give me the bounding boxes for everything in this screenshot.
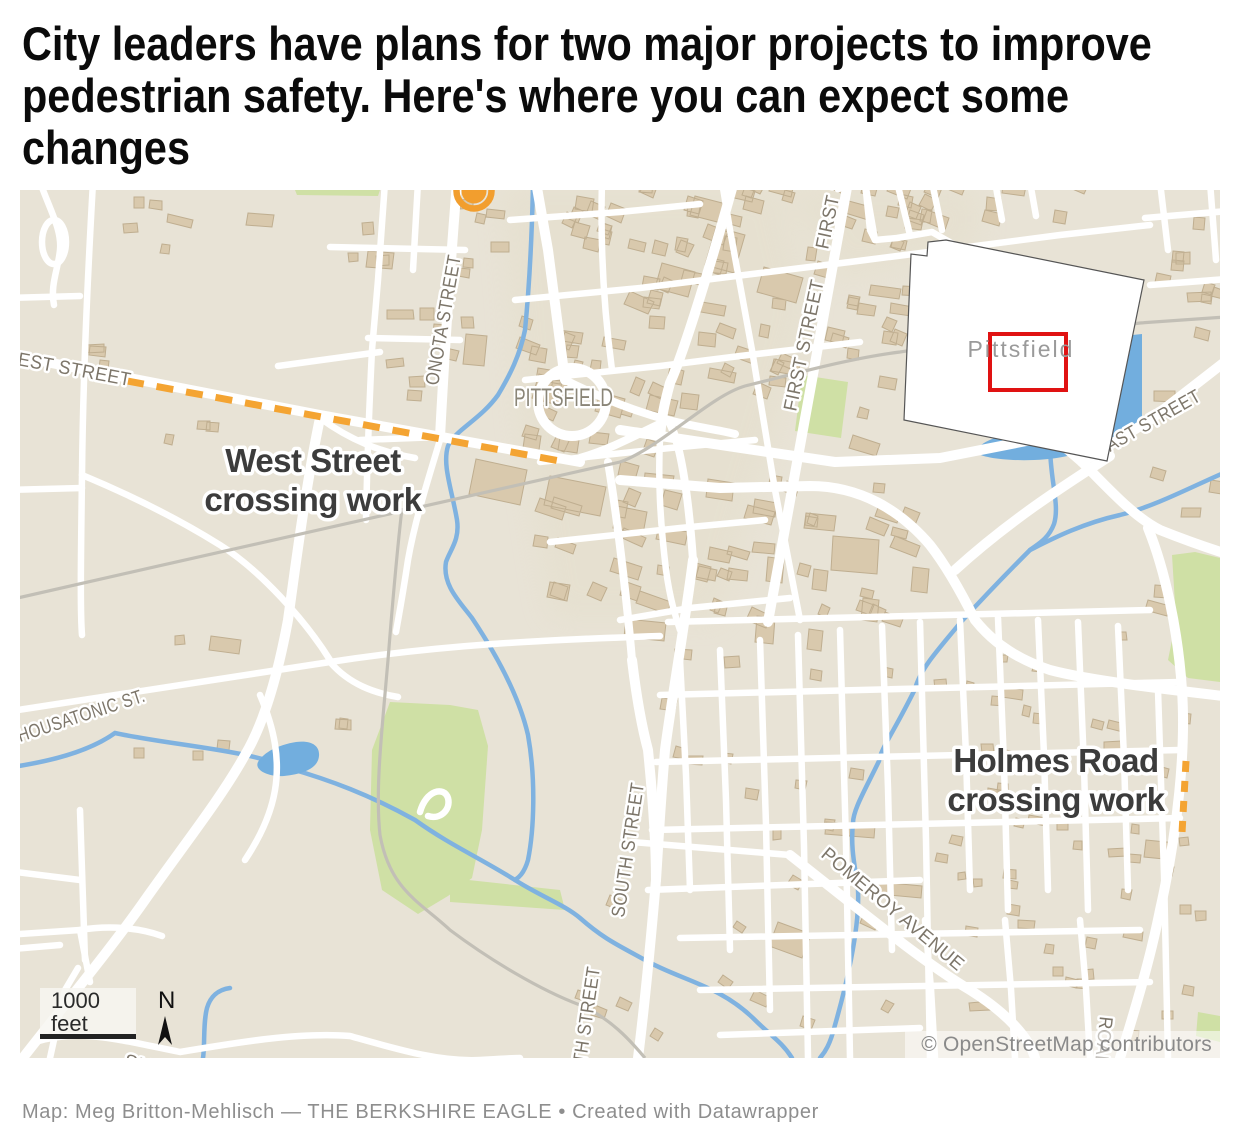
svg-text:crossing work: crossing work	[204, 481, 422, 518]
svg-text:crossing work: crossing work	[947, 781, 1165, 818]
svg-text:© OpenStreetMap contributors: © OpenStreetMap contributors	[921, 1033, 1212, 1056]
svg-text:N: N	[158, 987, 175, 1014]
svg-text:Holmes Road: Holmes Road	[953, 742, 1158, 779]
svg-text:1000: 1000	[51, 988, 100, 1013]
svg-text:West Street: West Street	[225, 442, 401, 479]
svg-text:PITTSFIELD: PITTSFIELD	[514, 384, 613, 412]
svg-text:Pittsfield: Pittsfield	[968, 336, 1075, 362]
svg-text:feet: feet	[51, 1011, 88, 1036]
